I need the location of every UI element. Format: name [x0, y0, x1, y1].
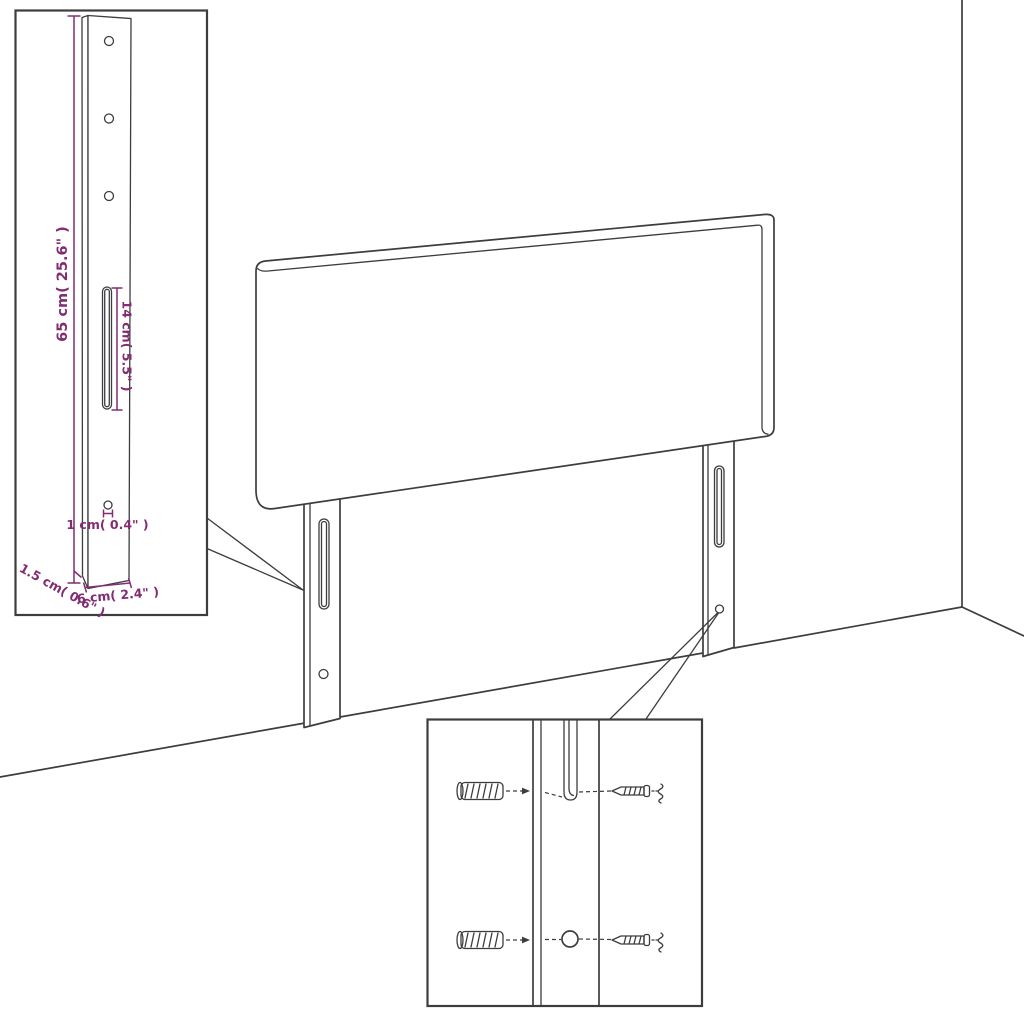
headboard-left-leg: [304, 478, 340, 728]
left-leg-hole: [319, 670, 328, 679]
mounting-detail-inset: [428, 720, 703, 1007]
dim-label-hole: 1 cm( 0.4" ): [66, 517, 148, 532]
leg-dimension-inset: 65 cm( 25.6" ) 14 cm( 5.5" ) 1 cm( 0.4" …: [16, 11, 208, 620]
bracket-side-face: [82, 16, 88, 589]
floor-line-right: [962, 607, 1024, 636]
inset-frame: [428, 720, 703, 1007]
callout-line: [207, 518, 303, 590]
diagram-canvas: 65 cm( 25.6" ) 14 cm( 5.5" ) 1 cm( 0.4" …: [0, 0, 1024, 1024]
headboard-assembly-diagram: 65 cm( 25.6" ) 14 cm( 5.5" ) 1 cm( 0.4" …: [0, 0, 1024, 1024]
right-leg-hole: [716, 605, 724, 613]
left-leg-slot: [319, 519, 329, 609]
dim-label-slot: 14 cm( 5.5" ): [120, 301, 135, 392]
callout-lines-left-inset: [207, 518, 303, 590]
panel-outline: [256, 214, 774, 509]
callout-line: [646, 613, 719, 719]
dim-label-length: 65 cm( 25.6" ): [55, 226, 71, 342]
headboard-panel: [256, 214, 774, 509]
right-leg-slot: [715, 466, 725, 547]
